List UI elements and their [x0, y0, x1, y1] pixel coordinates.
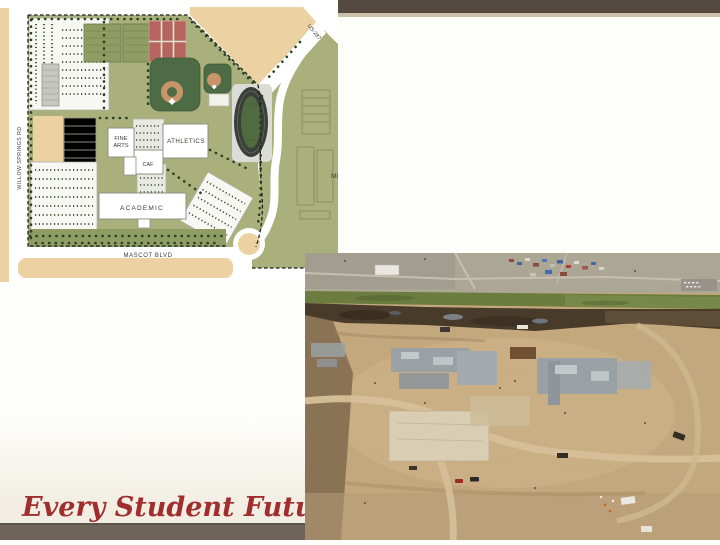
parking-lot-southwest: [31, 162, 97, 238]
parking-structure: [42, 64, 59, 106]
top-accent-bar: [338, 0, 720, 13]
footer-bar: [0, 523, 307, 540]
west-tan-strip: [0, 8, 9, 282]
tagline: Every Student Future Ready: [22, 492, 292, 523]
roundabout-island: [238, 233, 260, 255]
baseball-field: [150, 58, 200, 111]
track-stadium: [232, 84, 272, 162]
label-cafeteria: CAF: [143, 162, 155, 168]
west-building: [64, 118, 96, 164]
site-plan-map: FINE ARTS ATHLETICS CAF ACADEMIC MASCOT …: [0, 0, 338, 282]
photo-horizon: [305, 253, 720, 293]
label-willow-springs-rd: WILLOW SPRINGS RD: [17, 126, 23, 189]
label-athletics: ATHLETICS: [167, 138, 205, 145]
label-academic: ACADEMIC: [120, 205, 164, 212]
label-fine-arts-1: FINE: [114, 136, 127, 142]
label-mascot-blvd: MASCOT BLVD: [123, 253, 172, 259]
label-fine-arts-2: ARTS: [113, 143, 128, 149]
basketball-pad: [209, 94, 229, 106]
site-plan-svg: FINE ARTS ATHLETICS CAF ACADEMIC MASCOT …: [0, 0, 338, 282]
aerial-construction-photo: [305, 253, 720, 540]
label-middle-school-clipped: MI: [331, 173, 338, 180]
softball-field: [204, 64, 231, 93]
south-landscape-strip: [28, 229, 226, 247]
distant-parking-lot: [681, 279, 717, 291]
south-tan-strip: [18, 258, 233, 278]
tennis-courts: [149, 21, 186, 62]
presentation-slide: FINE ARTS ATHLETICS CAF ACADEMIC MASCOT …: [0, 0, 720, 540]
aerial-photo-svg: [305, 253, 720, 540]
top-accent-underline: [338, 13, 720, 17]
